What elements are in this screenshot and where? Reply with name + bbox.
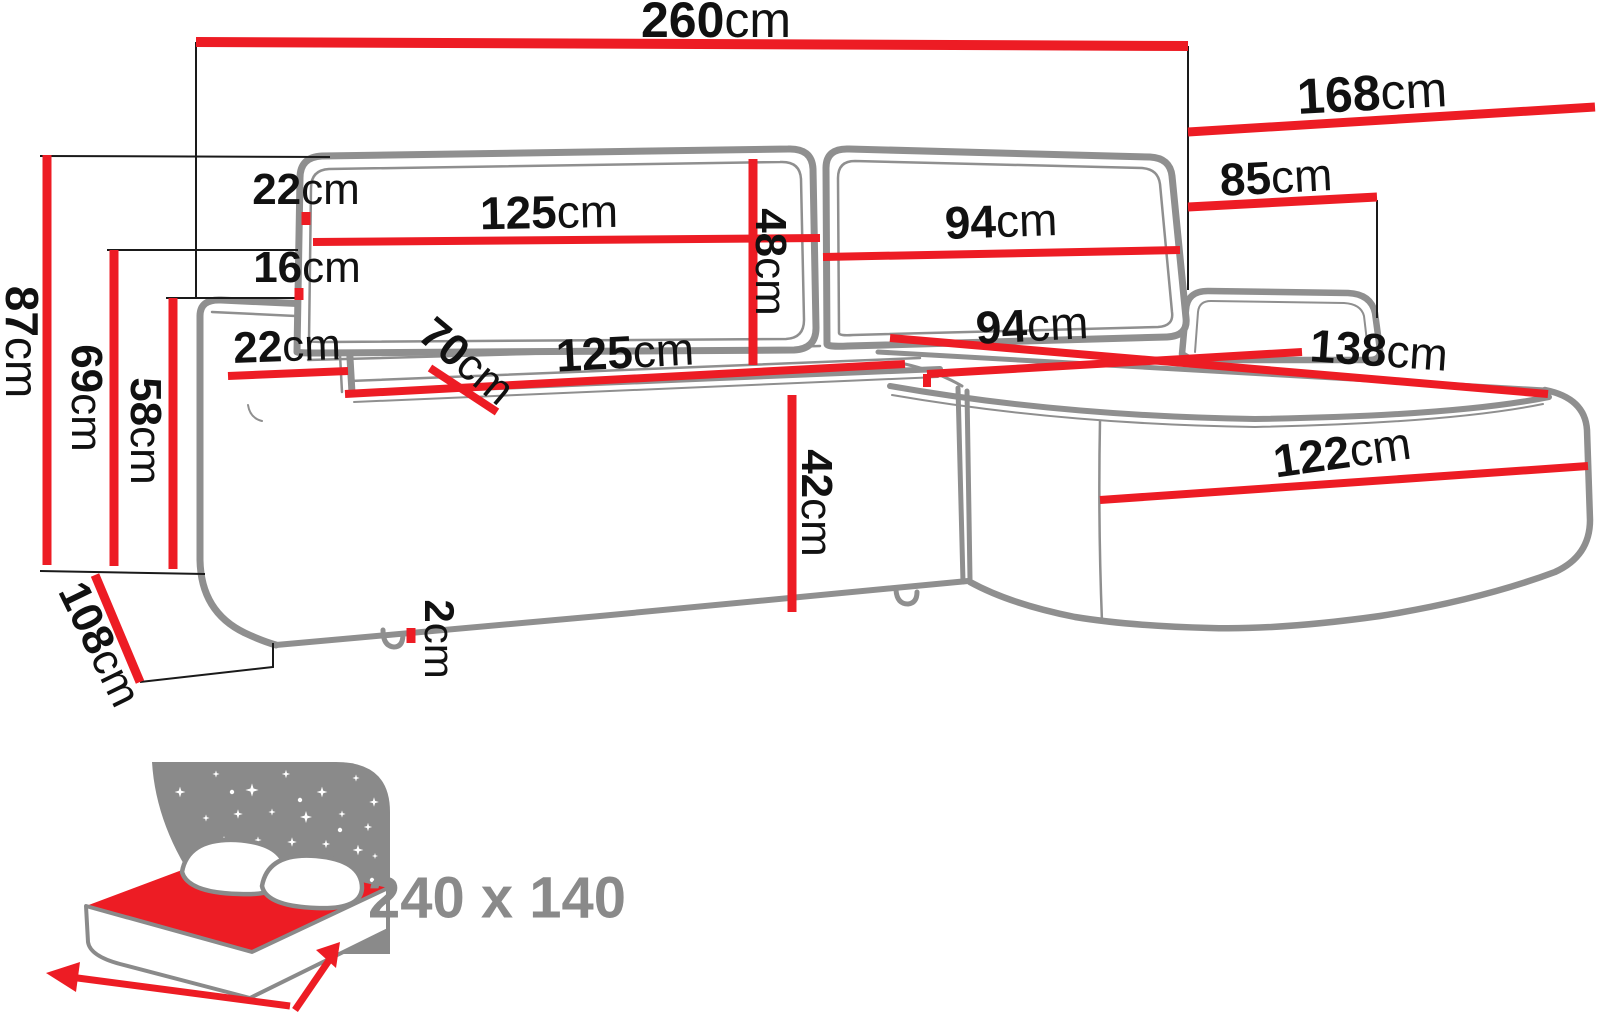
dim-chaise-width-label: 85cm (1218, 148, 1333, 206)
sleep-function-icon (46, 762, 390, 1010)
dim-backrest-thickness-label: 22cm (252, 165, 360, 214)
dim-seat-back-height-label: 58cm (122, 377, 171, 485)
dim-chaise-depth-label: 168cm (1296, 61, 1449, 125)
dim-seat-right-width-label: 94cm (974, 296, 1089, 354)
dimensions-diagram: 260cm 168cm 85cm 22cm 125cm 94cm 16cm 22… (0, 0, 1600, 1022)
dim-armrest-width-label: 22cm (232, 320, 341, 373)
dim-backrest-left-width-line (313, 238, 820, 242)
dim-seat-height-label: 42cm (793, 449, 842, 557)
dim-backrest-cushion-height-label: 48cm (747, 208, 796, 316)
dim-backrest-left-width-label: 125cm (480, 185, 619, 239)
dim-seat-left-width-label: 125cm (555, 322, 696, 381)
dim-chaise-length-label: 138cm (1308, 319, 1449, 381)
sofa-leg (896, 590, 917, 604)
dim-total-width-label: 260cm (641, 0, 791, 48)
dim-leg-height-label: 2cm (417, 599, 464, 678)
sofa-backrest-left (297, 149, 816, 353)
dim-backrest-gap-label: 16cm (253, 243, 361, 292)
sleeping-area-label: 240 x 140 (368, 866, 626, 931)
sofa-outline (200, 149, 1590, 647)
dim-total-depth-label: 108cm (49, 574, 151, 714)
dim-total-height-label: 87cm (0, 286, 48, 399)
dim-backrest-right-width-label: 94cm (944, 193, 1058, 249)
dim-armrest-height-label: 69cm (63, 344, 112, 452)
